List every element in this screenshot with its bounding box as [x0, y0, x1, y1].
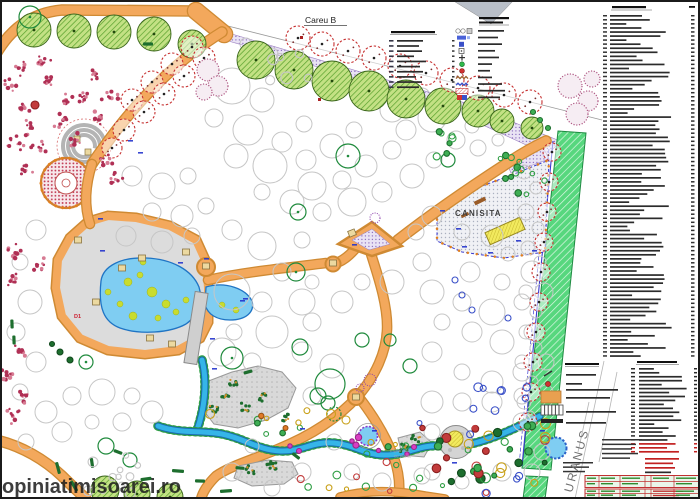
shrub-center: [347, 155, 350, 158]
rose-shrub-dot: [15, 243, 17, 245]
plant-code-tag: [240, 300, 245, 302]
legend-text-line: [452, 76, 455, 78]
shrub-dot: [50, 342, 55, 347]
legend-text-line: [631, 431, 635, 433]
tree-mark: [147, 85, 149, 87]
legend-text-line: [631, 404, 635, 406]
rose-shrub-dot: [107, 153, 110, 156]
legend-text-line: [610, 270, 637, 272]
legend-text-line: [610, 153, 665, 155]
legend-text-line: [691, 262, 695, 264]
legend-text-line: [603, 209, 607, 211]
plant-cluster-flower: [209, 405, 211, 407]
legend-text-line: [603, 39, 607, 41]
legend-text-line: [610, 137, 668, 139]
legend-text-line: [610, 128, 660, 130]
legend-text-line: [452, 50, 455, 52]
tree-mark: [208, 54, 210, 56]
legend-text-line: [639, 411, 679, 413]
title-block-text-line: [622, 491, 640, 492]
legend-text-line: [603, 294, 607, 296]
rose-shrub-dot: [116, 179, 119, 182]
legend-text-line: [631, 435, 635, 437]
title-block-text-line: [601, 491, 615, 492]
legend-text-line: [610, 258, 641, 260]
tree-mark: [342, 54, 344, 56]
legend-text-line: [637, 361, 677, 363]
rose-shrub-dot: [13, 280, 16, 283]
legend-text-line: [603, 35, 607, 37]
rose-shrub-dot: [44, 149, 48, 153]
legend-text-line: [691, 347, 695, 349]
legend-text-line: [610, 315, 646, 317]
legend-text-line: [610, 254, 656, 256]
plant-cluster-flower: [419, 436, 421, 438]
rose-shrub-dot: [57, 125, 61, 129]
shrub-circle-mauve: [558, 74, 582, 98]
rose-shrub-dot: [19, 75, 21, 77]
legend-text-line: [691, 307, 695, 309]
plant-cluster-flower: [216, 406, 218, 408]
legend-text-line: [694, 439, 697, 441]
plant-code-tag: [178, 262, 183, 264]
legend-text-line: [610, 189, 654, 191]
rose-shrub-dot: [19, 106, 24, 111]
tree-mark: [128, 126, 130, 128]
rose-shrub-dot: [110, 162, 114, 166]
legend-text-line: [639, 392, 669, 394]
tree-trunk: [123, 129, 126, 132]
legend-text-line: [610, 319, 630, 321]
bench: [75, 237, 82, 243]
shrub-dot: [507, 447, 513, 453]
legend-icon-trees: [461, 29, 465, 33]
legend-text-line: [610, 88, 632, 90]
shrub-dot: [288, 444, 292, 448]
rose-shrub-dot: [108, 157, 112, 161]
plant-cluster-dot: [417, 440, 420, 443]
legend-text-line: [602, 439, 642, 441]
rose-shrub-dot: [18, 141, 22, 145]
legend-text-line: [603, 153, 607, 155]
plant-cluster-flower: [235, 381, 237, 383]
legend-text-line: [389, 50, 394, 52]
legend-text-line: [631, 408, 635, 410]
rose-shrub-dot: [85, 92, 89, 96]
legend-text-line: [603, 145, 607, 147]
legend-text-line: [610, 27, 641, 29]
rose-shrub-dot: [31, 144, 34, 147]
rose-garden-center: [55, 172, 77, 194]
rose-shrub-dot: [78, 100, 82, 104]
legend-text-line: [389, 55, 394, 57]
legend-text-line: [610, 238, 644, 240]
legend-text-line: [603, 351, 607, 353]
rose-shrub-dot: [82, 98, 86, 102]
amphitheater-stage: [85, 149, 91, 155]
plant-cluster-dot: [281, 419, 284, 422]
legend-text-line: [691, 290, 695, 292]
shrub-dot: [493, 428, 501, 436]
legend-text-line: [691, 76, 695, 78]
legend-text-line: [603, 246, 607, 248]
shrub-dot: [31, 101, 39, 109]
legend-text-line: [610, 222, 634, 224]
bench: [203, 263, 210, 269]
legend-text-line: [639, 423, 654, 425]
legend-text-line: [603, 250, 607, 252]
legend-text-line: [631, 451, 635, 453]
tree-mark: [316, 47, 318, 49]
legend-text-line: [610, 60, 643, 62]
rose-shrub-dot: [26, 124, 28, 126]
rose-shrub-dot: [81, 91, 84, 94]
legend-text-line: [603, 173, 607, 175]
plant-code-tag: [352, 244, 357, 246]
rose-shrub-dot: [116, 93, 120, 97]
legend-text-line: [691, 311, 695, 313]
legend-text-line: [639, 439, 667, 441]
legend-icon-kiosk: [461, 50, 463, 52]
tree-mark: [547, 238, 549, 240]
legend-text-line: [478, 97, 500, 99]
title-block-text-line: [587, 495, 595, 496]
legend-text-line: [645, 463, 673, 465]
shrub-dot: [376, 448, 380, 452]
shrub-dot: [448, 478, 454, 484]
legend-text-line: [610, 181, 641, 183]
rose-shrub-dot: [10, 412, 13, 415]
tree-mark: [107, 151, 109, 153]
rose-shrub-dot: [5, 373, 9, 377]
rose-shrub-dot: [100, 98, 104, 102]
legend-text-line: [691, 339, 695, 341]
legend-text-line: [610, 43, 640, 45]
rose-shrub-dot: [7, 86, 10, 89]
legend-text-line: [603, 347, 607, 349]
tree-trunk: [531, 127, 534, 130]
plant-cluster-dot: [274, 461, 277, 464]
legend-text-line: [691, 213, 695, 215]
rose-shrub-dot: [15, 134, 19, 138]
shrub-center: [29, 16, 32, 19]
hedge: [195, 479, 205, 483]
legend-text-line: [639, 388, 687, 390]
rose-shrub-dot: [17, 409, 20, 412]
legend-text-line: [645, 467, 675, 469]
legend-text-line: [610, 286, 654, 288]
legend-text-line: [691, 96, 695, 98]
tree-mark: [168, 90, 170, 92]
plant-cluster-dot: [228, 382, 231, 385]
rose-shrub-dot: [16, 349, 20, 353]
plant-code-tag: [204, 258, 209, 260]
legend-text-line: [603, 96, 607, 98]
tree-mark: [176, 60, 178, 62]
title-block: [585, 476, 699, 499]
legend-text-line: [694, 435, 697, 437]
title-block-text-line: [676, 491, 694, 492]
legend-text-line: [610, 213, 640, 215]
rose-shrub-dot: [21, 68, 24, 71]
legend-text-line: [639, 376, 682, 378]
tree-trunk: [171, 63, 174, 66]
tree-mark: [539, 328, 541, 330]
legend-text-line: [389, 40, 394, 42]
legend-text-line: [694, 443, 697, 445]
legend-text-line: [691, 303, 695, 305]
legend-icon-planter: [541, 391, 561, 403]
legend-text-line: [639, 435, 676, 437]
rose-shrub-dot: [93, 117, 97, 121]
legend-text-line: [389, 71, 394, 73]
legend-text-line: [478, 83, 502, 85]
legend-text-line: [691, 335, 695, 337]
legend-text-line: [610, 23, 626, 25]
shrub-dot: [542, 460, 547, 465]
legend-text-line: [566, 422, 606, 424]
legend-text-line: [645, 472, 671, 474]
rose-shrub-dot: [39, 148, 43, 152]
bench: [169, 341, 176, 347]
tree-mark: [196, 43, 198, 45]
rose-shrub-dot: [8, 408, 10, 410]
legend-text-line: [603, 258, 607, 260]
legend-text-line: [691, 319, 695, 321]
rose-shrub-dot: [21, 104, 23, 106]
shrub-dot: [283, 426, 288, 431]
shrub-dot: [255, 420, 261, 426]
rose-shrub-dot: [14, 84, 18, 88]
legend-icon-fountain: [460, 62, 465, 67]
rose-shrub-dot: [76, 139, 79, 142]
legend-text-line: [603, 282, 607, 284]
aquatic-plants: [183, 297, 189, 303]
shrub-dot: [259, 413, 264, 418]
plant-cluster-dot: [269, 460, 272, 463]
rose-shrub-dot: [24, 394, 28, 398]
legend-text-line: [610, 218, 662, 220]
hedge: [143, 42, 153, 45]
legend-text-line: [389, 66, 394, 68]
legend-text-line: [691, 141, 695, 143]
legend-text-line: [691, 226, 695, 228]
rose-shrub-dot: [42, 143, 45, 146]
shrub-dot: [355, 434, 361, 440]
plant-cluster-flower: [246, 410, 248, 412]
tree-trunk: [530, 391, 533, 394]
legend-text-line: [610, 84, 645, 86]
legend-text-line: [610, 173, 642, 175]
tree-mark: [379, 54, 381, 56]
red-marker: [300, 36, 303, 39]
legend-text-line: [452, 61, 455, 63]
shrub-dot: [420, 425, 425, 430]
rose-shrub-dot: [109, 177, 112, 180]
legend-text-line: [610, 145, 653, 147]
tree-mark: [292, 41, 294, 43]
shrub-dot: [515, 190, 522, 197]
legend-text-line: [691, 23, 695, 25]
legend-text-line: [566, 389, 618, 391]
tree-trunk: [33, 29, 36, 32]
rose-shrub-dot: [101, 163, 106, 168]
legend-text-line: [691, 185, 695, 187]
legend-text-line: [691, 64, 695, 66]
shrub-dot: [546, 126, 551, 131]
legend-text-line: [603, 80, 607, 82]
d1-code-label: D1: [74, 314, 81, 320]
legend-text-line: [610, 327, 672, 329]
bench: [147, 335, 154, 341]
legend-text-line: [694, 415, 697, 417]
legend-text-line: [610, 347, 666, 349]
legend-text-line: [603, 112, 607, 114]
tree-trunk: [425, 72, 428, 75]
legend-text-line: [610, 307, 649, 309]
legend-text-line: [610, 266, 653, 268]
legend-text-line: [689, 6, 695, 8]
legend-text-line: [691, 258, 695, 260]
aquatic-plants: [137, 272, 143, 278]
tree-mark: [167, 67, 169, 69]
legend-text-line: [452, 66, 455, 68]
legend-text-line: [691, 181, 695, 183]
legend-text-line: [610, 242, 662, 244]
shrub-dot: [67, 357, 73, 363]
legend-icon-gazebo: [460, 69, 465, 74]
plant-cluster-dot: [269, 467, 272, 470]
legend-text-line: [603, 84, 607, 86]
aquatic-plants: [173, 309, 179, 315]
bench: [183, 249, 190, 255]
rose-shrub-dot: [9, 373, 12, 376]
legend-text-line: [391, 31, 435, 33]
legend-text-line: [397, 50, 422, 52]
legend-text-line: [478, 63, 492, 65]
legend-text-line: [452, 45, 455, 47]
title-block-text-line: [601, 483, 613, 484]
rose-shrub-dot: [116, 96, 120, 100]
legend-text-line: [691, 145, 695, 147]
rose-shrub-dot: [63, 102, 66, 105]
title-block-text-line: [653, 495, 679, 496]
legend-text-line: [603, 205, 607, 207]
tree-mark: [368, 61, 370, 63]
legend-text-line: [603, 116, 607, 118]
shrub-dot: [457, 469, 465, 477]
legend-text-line: [610, 299, 661, 301]
legend-text-line: [610, 197, 639, 199]
legend-text-line: [691, 84, 695, 86]
tree-trunk: [143, 111, 146, 114]
rose-shrub-dot: [75, 131, 79, 135]
tree-trunk: [153, 33, 156, 36]
rose-shrub-dot: [20, 168, 24, 172]
legend-text-line: [603, 15, 607, 17]
rose-shrub-dot: [107, 95, 110, 98]
plant-code-tag: [462, 246, 467, 248]
legend-text-line: [691, 27, 695, 29]
rose-shrub-dot: [14, 276, 18, 280]
plant-code-tag: [138, 152, 143, 154]
legend-text-line: [602, 457, 630, 459]
legend-text-line: [631, 368, 635, 370]
legend-text-line: [639, 384, 662, 386]
rose-shrub-dot: [70, 95, 74, 99]
rose-shrub-dot: [109, 90, 113, 94]
legend-text-line: [691, 282, 695, 284]
rose-shrub-dot: [10, 84, 14, 88]
legend-text-line: [389, 86, 394, 88]
legend-text-line: [603, 76, 607, 78]
legend-text-line: [610, 234, 657, 236]
legend-text-line: [691, 120, 695, 122]
legend-text-line: [603, 327, 607, 329]
plant-cluster-dot: [283, 415, 286, 418]
legend-text-line: [691, 250, 695, 252]
shrub-dot: [280, 430, 286, 436]
legend-text-line: [478, 43, 502, 45]
legend-text-line: [610, 351, 633, 353]
legend-text-line: [691, 286, 695, 288]
tree-trunk: [131, 99, 134, 102]
legend-text-line: [610, 226, 627, 228]
legend-text-line: [691, 246, 695, 248]
legend-text-line: [603, 68, 607, 70]
legend-text-line: [694, 451, 697, 453]
plant-code-tag: [243, 298, 248, 300]
tree-trunk: [535, 331, 538, 334]
legend-text-line: [610, 278, 665, 280]
legend-text-line: [631, 392, 635, 394]
legend-text-line: [610, 56, 637, 58]
legend-text-line: [603, 161, 607, 163]
legend-icon-pavement: [467, 29, 472, 34]
tree-mark: [127, 103, 129, 105]
legend-text-line: [610, 246, 663, 248]
rose-shrub-dot: [20, 393, 24, 397]
legend-text-line: [691, 92, 695, 94]
tree-trunk: [543, 241, 546, 244]
legend-text-line: [691, 238, 695, 240]
legend-text-line: [691, 72, 695, 74]
legend-text-line: [566, 411, 616, 413]
legend-text-line: [691, 47, 695, 49]
legend-text-line: [610, 19, 650, 21]
legend-text-line: [691, 132, 695, 134]
legend-text-line: [397, 81, 422, 83]
legend-text-line: [610, 141, 670, 143]
legend-text-line: [389, 61, 394, 63]
rose-shrub-dot: [15, 273, 18, 276]
tree-mark: [555, 148, 557, 150]
legend-text-line: [631, 396, 635, 398]
plant-cluster-dot: [410, 437, 413, 440]
tree-mark: [509, 91, 511, 93]
legend-text-line: [691, 266, 695, 268]
legend-text-line: [691, 137, 695, 139]
tree-trunk: [151, 81, 154, 84]
legend-text-line: [610, 116, 671, 118]
legend-text-line: [691, 193, 695, 195]
plant-code-tag: [128, 140, 133, 142]
legend-text-line: [603, 299, 607, 301]
legend-text-line: [691, 31, 695, 33]
legend-text-line: [603, 72, 607, 74]
tree-mark: [156, 78, 158, 80]
tree-mark: [543, 214, 545, 216]
